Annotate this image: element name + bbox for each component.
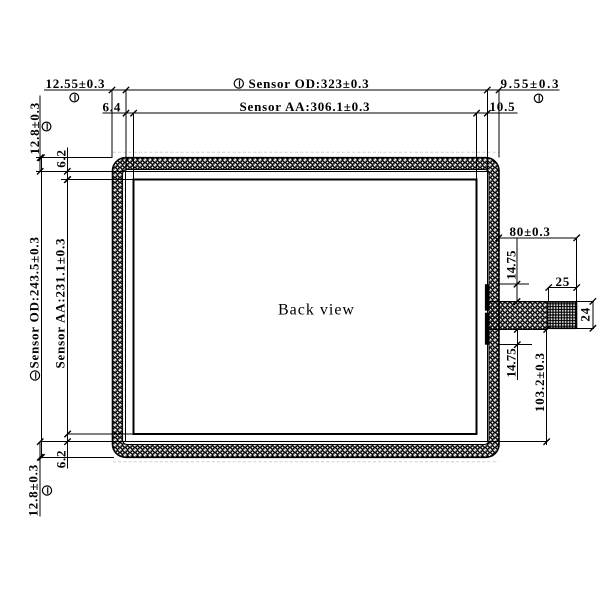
svg-text:12.8±0.3: 12.8±0.3 (26, 464, 41, 517)
svg-text:Sensor OD:243.5±0.3: Sensor OD:243.5±0.3 (27, 236, 42, 368)
svg-text:Back view: Back view (278, 302, 355, 319)
svg-text:103.2±0.3: 103.2±0.3 (532, 352, 547, 412)
svg-text:6.2: 6.2 (53, 450, 68, 469)
svg-text:25: 25 (556, 274, 571, 289)
svg-text:Sensor OD:323±0.3: Sensor OD:323±0.3 (249, 76, 370, 91)
svg-text:12.55±0.3: 12.55±0.3 (46, 76, 106, 91)
svg-text:12.8±0.3: 12.8±0.3 (27, 102, 42, 155)
svg-text:9.55±0.3: 9.55±0.3 (501, 76, 561, 91)
svg-text:80±0.3: 80±0.3 (510, 224, 551, 239)
svg-text:Sensor AA:231.1±0.3: Sensor AA:231.1±0.3 (52, 238, 67, 369)
svg-text:14.75: 14.75 (503, 250, 518, 280)
svg-text:Sensor AA:306.1±0.3: Sensor AA:306.1±0.3 (240, 99, 371, 114)
svg-text:14.75: 14.75 (504, 348, 519, 378)
svg-text:10.5: 10.5 (490, 99, 516, 114)
svg-text:6.4: 6.4 (103, 99, 122, 114)
svg-text:24: 24 (577, 307, 592, 322)
svg-text:6.2: 6.2 (54, 149, 69, 168)
